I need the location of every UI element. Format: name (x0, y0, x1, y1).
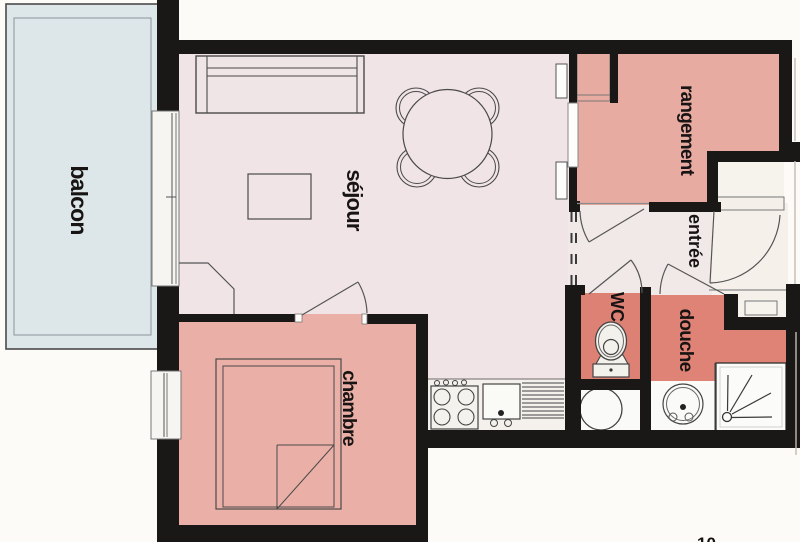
svg-text:douche: douche (675, 309, 696, 372)
svg-text:rangement: rangement (676, 85, 697, 176)
svg-text:10: 10 (697, 534, 716, 542)
svg-text:entrée: entrée (685, 214, 705, 268)
svg-text:chambre: chambre (338, 370, 360, 447)
svg-text:WC: WC (607, 292, 627, 322)
svg-text:séjour: séjour (342, 169, 367, 231)
svg-text:balcon: balcon (66, 165, 92, 234)
